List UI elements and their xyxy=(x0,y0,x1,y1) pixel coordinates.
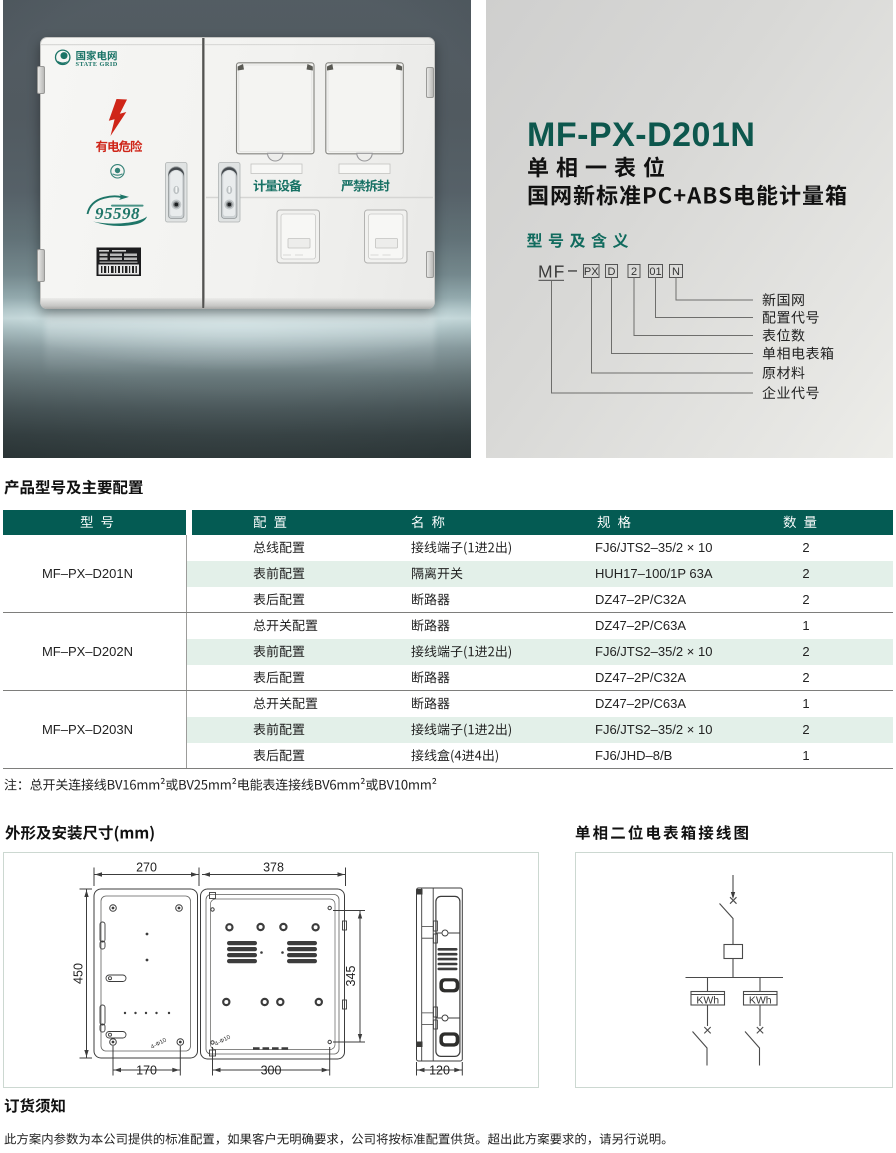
svg-text:170: 170 xyxy=(136,1064,157,1078)
svg-text:KWh: KWh xyxy=(749,995,772,1007)
svg-text:120: 120 xyxy=(429,1064,450,1078)
svg-text:270: 270 xyxy=(136,861,157,875)
svg-text:300: 300 xyxy=(261,1064,282,1078)
svg-text:PX: PX xyxy=(584,266,599,278)
svg-text:4-Φ10: 4-Φ10 xyxy=(150,1037,168,1050)
svg-text:4-Φ10: 4-Φ10 xyxy=(214,1034,232,1047)
svg-text:345: 345 xyxy=(344,966,358,987)
svg-text:MF: MF xyxy=(538,262,565,282)
svg-text:01: 01 xyxy=(649,266,661,278)
svg-text:D: D xyxy=(608,266,616,278)
svg-text:N: N xyxy=(672,266,680,278)
svg-text:KWh: KWh xyxy=(696,995,719,1007)
svg-text:378: 378 xyxy=(263,861,284,875)
svg-text:95598: 95598 xyxy=(95,204,140,223)
svg-text:450: 450 xyxy=(72,963,86,984)
svg-text:2: 2 xyxy=(631,266,637,278)
